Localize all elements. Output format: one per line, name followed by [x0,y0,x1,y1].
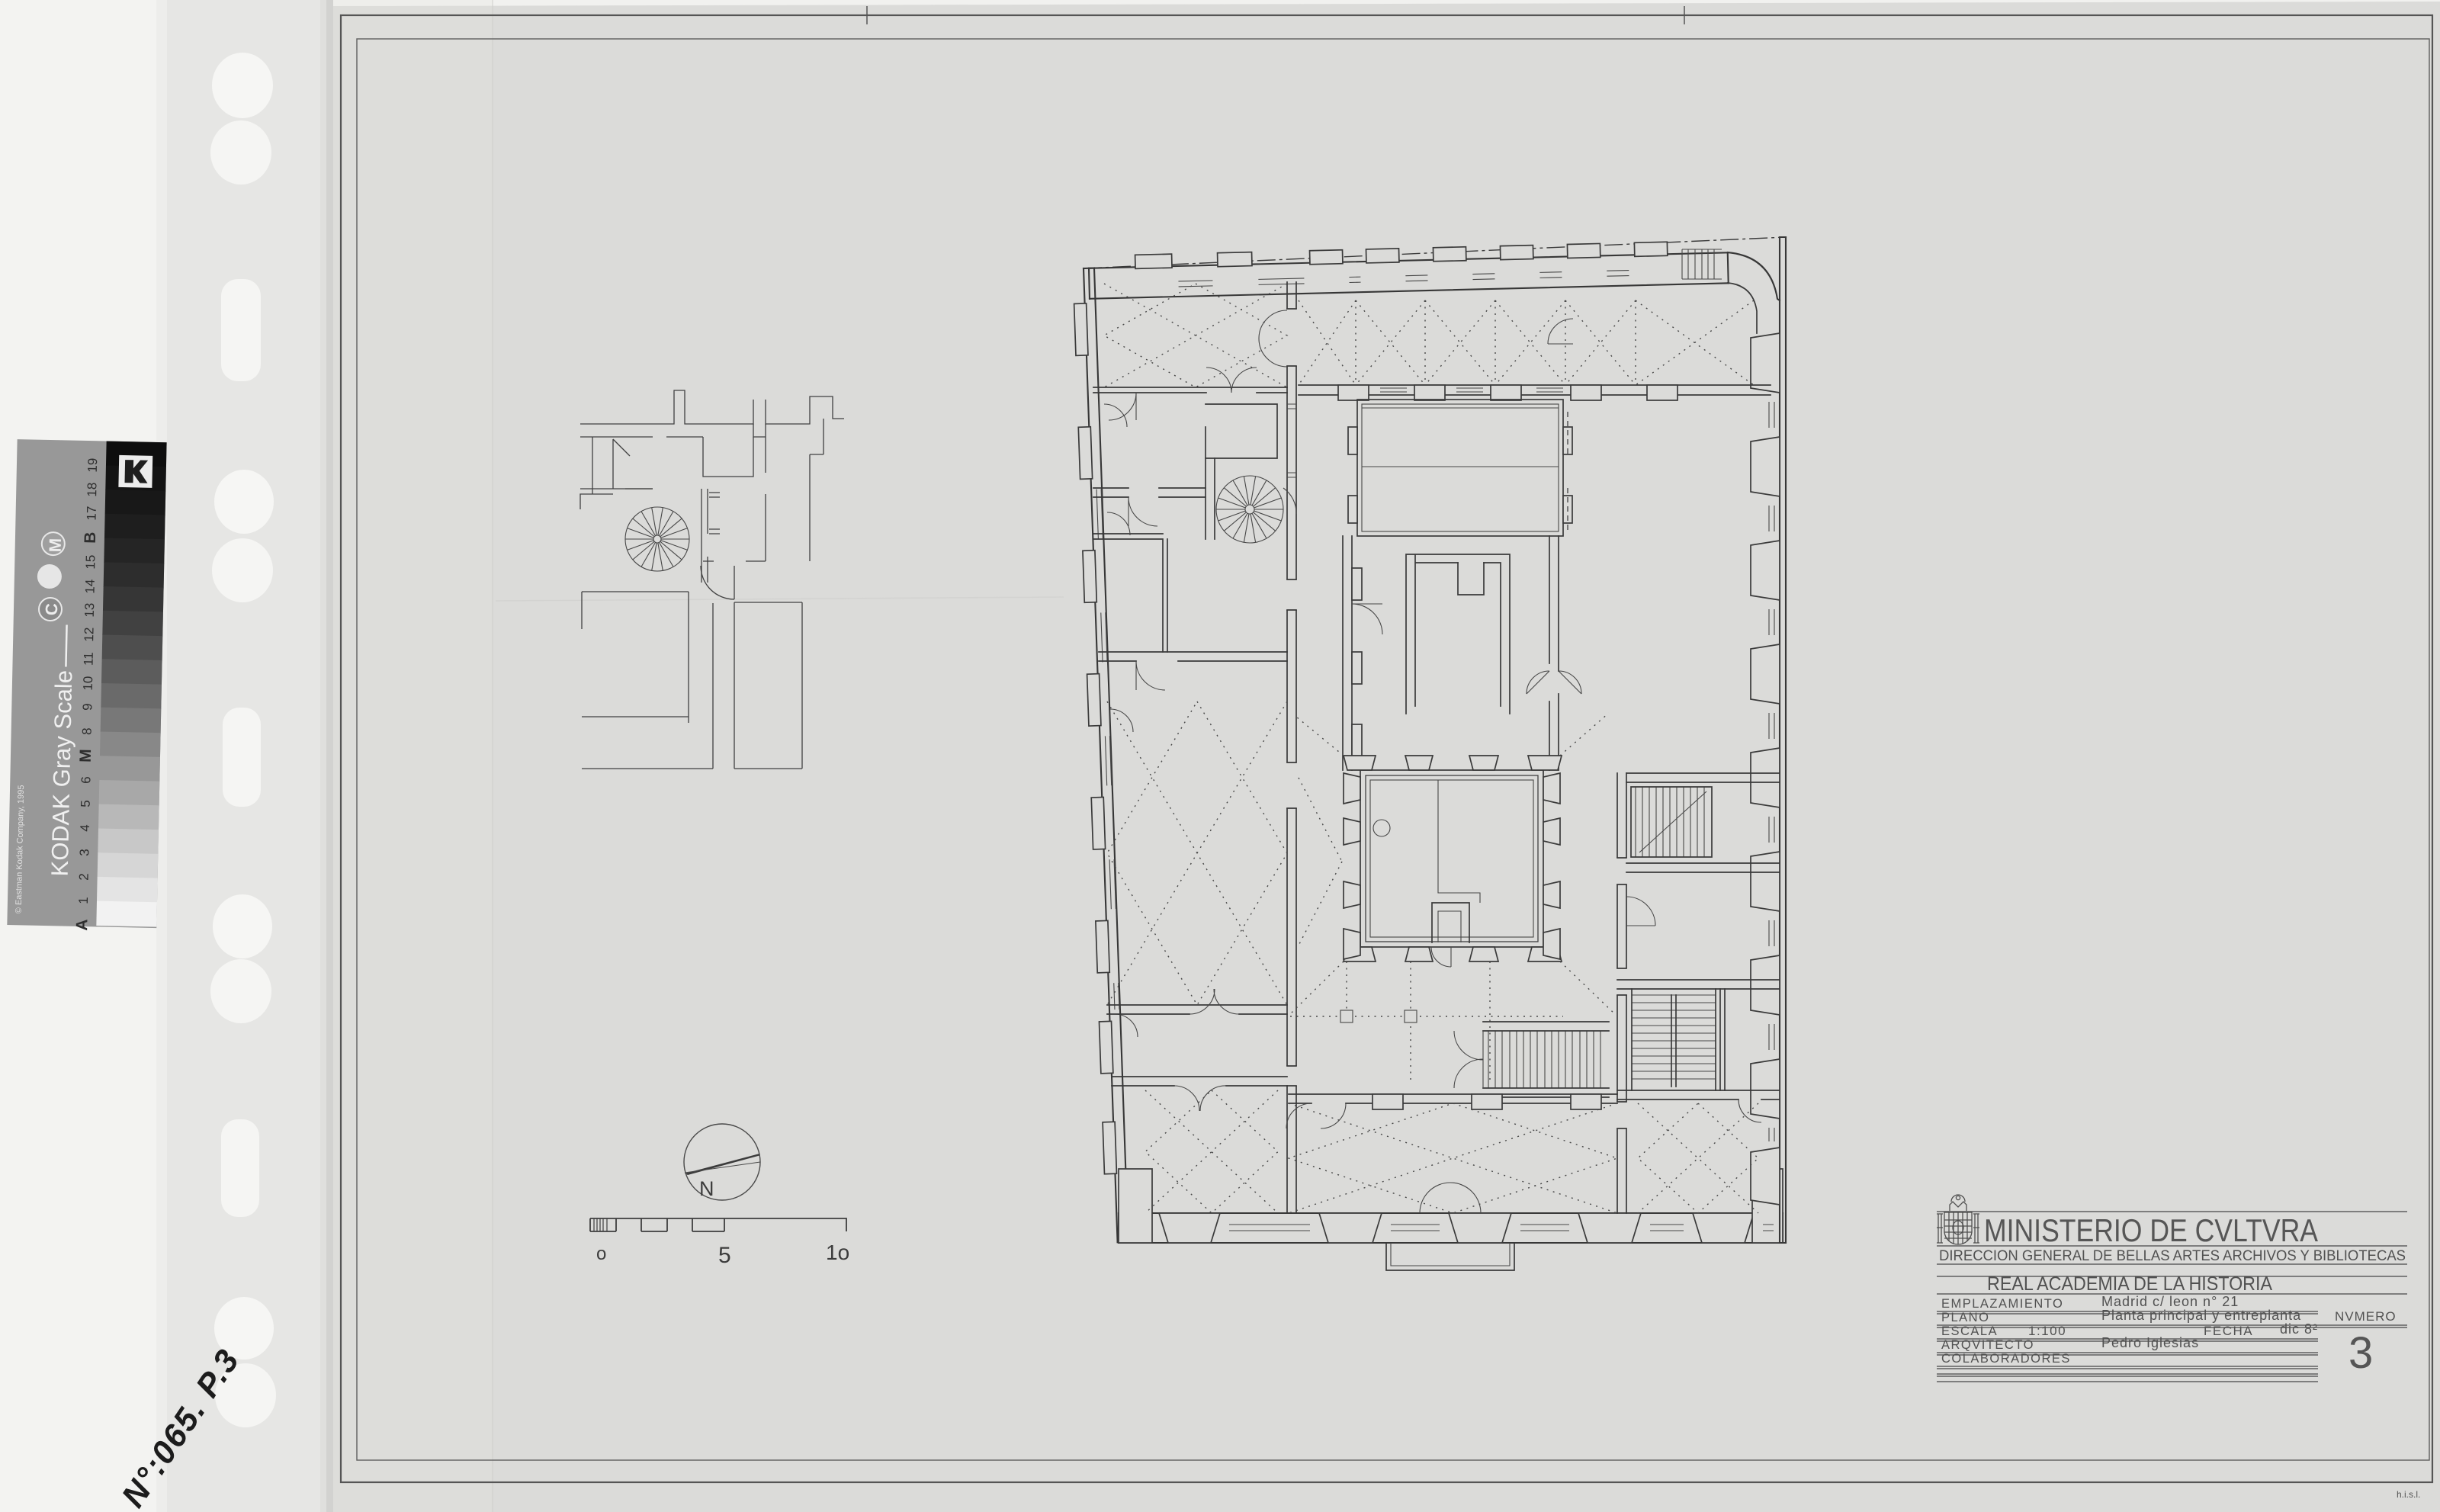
svg-text:FECHA: FECHA [2204,1324,2253,1338]
svg-text:5: 5 [79,800,93,807]
svg-text:Madrid c/ leon n° 21: Madrid c/ leon n° 21 [2101,1294,2239,1309]
svg-text:A: A [73,919,91,931]
svg-text:1o: 1o [826,1241,849,1264]
svg-text:h.i.s.l.: h.i.s.l. [2397,1489,2420,1500]
svg-text:KODAK Gray Scale: KODAK Gray Scale [47,670,78,877]
svg-text:8: 8 [80,727,95,735]
svg-text:Planta principal y entreplanta: Planta principal y entreplanta [2101,1308,2301,1323]
svg-text:ESCALA: ESCALA [1941,1324,1998,1338]
svg-text:5: 5 [718,1243,731,1268]
svg-text:12: 12 [82,627,96,641]
svg-text:10: 10 [81,676,95,690]
svg-text:dic 8²: dic 8² [2280,1321,2318,1337]
svg-text:EMPLAZAMIENTO: EMPLAZAMIENTO [1941,1297,2063,1311]
svg-text:19: 19 [85,458,100,473]
svg-text:Pedro Iglesias: Pedro Iglesias [2101,1335,2199,1350]
svg-text:ARQVITECTO: ARQVITECTO [1941,1338,2034,1352]
svg-text:14: 14 [82,579,97,593]
svg-text:15: 15 [83,554,98,569]
svg-text:DIRECCION GENERAL DE BELLAS AR: DIRECCION GENERAL DE BELLAS ARTES ARCHIV… [1939,1248,2406,1264]
svg-text:NVMERO: NVMERO [2335,1309,2397,1324]
svg-text:17: 17 [84,506,98,521]
svg-text:C: C [42,603,61,616]
svg-text:4: 4 [78,824,92,832]
svg-text:COLABORADORES: COLABORADORES [1941,1352,2071,1366]
svg-text:M: M [77,749,95,762]
svg-text:B: B [82,531,99,544]
svg-text:2: 2 [77,873,91,881]
svg-text:11: 11 [81,652,95,666]
svg-text:N: N [699,1177,714,1200]
svg-text:13: 13 [82,602,97,617]
svg-text:1:100: 1:100 [2028,1324,2066,1338]
svg-text:6: 6 [79,776,93,784]
svg-text:3: 3 [77,849,91,856]
svg-text:PLANO: PLANO [1941,1311,1989,1324]
svg-text:REAL ACADEMIA DE LA HISTORIA: REAL ACADEMIA DE LA HISTORIA [1987,1273,2272,1295]
svg-text:o: o [596,1244,606,1264]
svg-text:3: 3 [2348,1328,2373,1378]
svg-text:1: 1 [76,897,91,904]
svg-text:9: 9 [80,703,95,711]
svg-text:MINISTERIO DE CVLTVRA: MINISTERIO DE CVLTVRA [1984,1212,2318,1248]
svg-text:M: M [46,538,65,553]
svg-text:18: 18 [85,483,99,497]
